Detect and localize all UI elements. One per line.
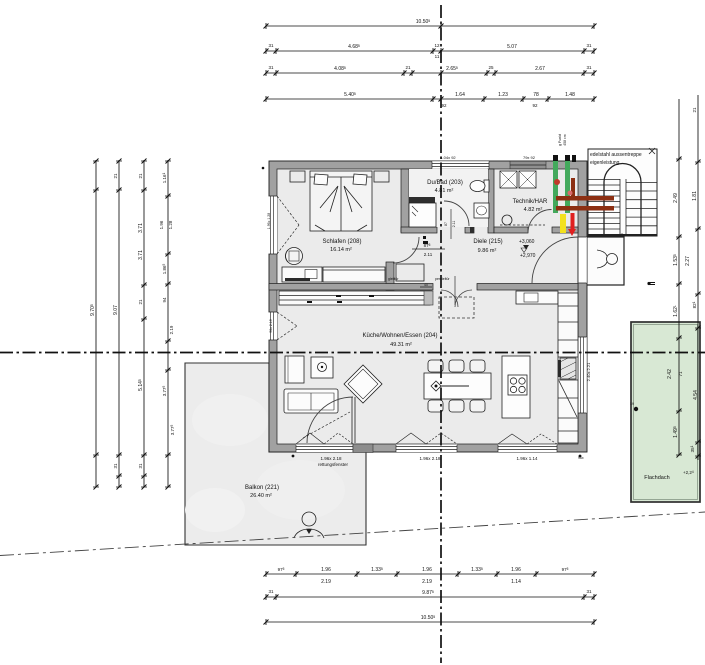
svg-text:+3,060: +3,060: [519, 239, 535, 245]
svg-text:2.40x 2.21: 2.40x 2.21: [586, 362, 591, 381]
svg-text:Flachdach: Flachdach: [644, 475, 669, 481]
svg-text:31: 31: [268, 65, 274, 70]
svg-text:19: 19: [630, 402, 634, 406]
svg-text:2.11: 2.11: [424, 252, 433, 257]
svg-text:16.14 m²: 16.14 m²: [330, 247, 352, 253]
svg-text:94: 94: [162, 297, 167, 303]
svg-text:1.64: 1.64: [455, 92, 465, 98]
svg-text:458 cm: 458 cm: [563, 134, 567, 146]
svg-text:edelstahl aussentreppe: edelstahl aussentreppe: [590, 152, 642, 158]
svg-text:1.96x 1.14: 1.96x 1.14: [516, 456, 538, 461]
svg-text:2.67: 2.67: [535, 66, 545, 72]
svg-text:1.23: 1.23: [498, 92, 508, 98]
svg-text:12: 12: [434, 43, 440, 48]
svg-text:1.48: 1.48: [565, 92, 575, 98]
svg-text:25: 25: [488, 65, 494, 70]
svg-text:31: 31: [586, 43, 592, 48]
svg-text:1.96: 1.96: [422, 567, 432, 573]
svg-text:21: 21: [405, 65, 411, 70]
svg-text:78: 78: [533, 92, 539, 98]
svg-text:Balkon (221): Balkon (221): [245, 485, 279, 491]
svg-text:87: 87: [444, 222, 448, 226]
svg-text:1.28: 1.28: [168, 220, 173, 229]
svg-text:31: 31: [268, 589, 274, 594]
svg-text:9.07: 9.07: [113, 305, 119, 315]
svg-text:31: 31: [268, 43, 274, 48]
svg-text:Du/Bad (203): Du/Bad (203): [427, 180, 463, 186]
svg-text:2.19: 2.19: [169, 325, 174, 334]
svg-text:1.14: 1.14: [511, 579, 521, 585]
svg-text:3.71: 3.71: [138, 223, 144, 233]
svg-text:rettungsfenster: rettungsfenster: [318, 462, 349, 467]
svg-text:1.96x 2.18: 1.96x 2.18: [419, 456, 441, 461]
svg-text:2.42: 2.42: [667, 369, 673, 379]
svg-text:2.11: 2.11: [452, 221, 456, 228]
svg-text:92: 92: [441, 103, 447, 108]
svg-text:71: 71: [678, 371, 683, 377]
svg-text:2.19: 2.19: [422, 579, 432, 585]
svg-text:40: 40: [424, 283, 428, 287]
svg-text:10.505: 10.505: [421, 615, 436, 621]
svg-text:1.96x 2.18: 1.96x 2.18: [320, 456, 342, 461]
svg-text:g Punkt: g Punkt: [558, 134, 562, 146]
svg-text:eigenleistung: eigenleistung: [590, 160, 620, 166]
svg-text:3.71: 3.71: [138, 250, 144, 260]
svg-text:1.96: 1.96: [511, 567, 521, 573]
svg-text:92: 92: [532, 103, 538, 108]
svg-text:31: 31: [586, 65, 592, 70]
svg-text:5.07: 5.07: [507, 44, 517, 50]
svg-text:1.96x 1.28: 1.96x 1.28: [267, 213, 271, 229]
svg-text:1.96: 1.96: [159, 220, 164, 229]
svg-text:gleittür: gleittür: [388, 277, 399, 281]
svg-text:31: 31: [586, 589, 592, 594]
svg-text:96x 2.19: 96x 2.19: [269, 319, 273, 332]
svg-text:31: 31: [113, 463, 118, 469]
svg-text:1.96: 1.96: [321, 567, 331, 573]
svg-text:31: 31: [138, 463, 143, 469]
svg-text:4.54: 4.54: [693, 390, 699, 400]
svg-text:+2,970: +2,970: [520, 253, 536, 259]
svg-text:10.505: 10.505: [416, 19, 431, 25]
svg-text:1.04x 92: 1.04x 92: [440, 155, 456, 160]
svg-text:4.82 m²: 4.82 m²: [524, 207, 543, 213]
svg-text:9.86 m²: 9.86 m²: [478, 248, 497, 254]
svg-text:79x 92: 79x 92: [523, 155, 536, 160]
svg-text:2.49: 2.49: [673, 193, 679, 203]
svg-text:49.31 m²: 49.31 m²: [390, 342, 412, 348]
svg-text:21: 21: [692, 107, 697, 113]
svg-text:Schlafen (208): Schlafen (208): [322, 239, 361, 245]
svg-text:11: 11: [435, 54, 440, 59]
svg-text:21: 21: [138, 173, 143, 179]
svg-text:pendeltür: pendeltür: [435, 277, 450, 281]
svg-text:21: 21: [113, 173, 118, 179]
svg-text:Küche/Wohnen/Essen (204): Küche/Wohnen/Essen (204): [363, 333, 438, 339]
svg-text:2.19: 2.19: [321, 579, 331, 585]
svg-text:1.81: 1.81: [692, 191, 698, 201]
svg-text:Diele (215): Diele (215): [473, 239, 502, 245]
svg-text:2.27: 2.27: [685, 256, 691, 266]
svg-text:21: 21: [138, 299, 143, 305]
svg-text:26.40 m²: 26.40 m²: [250, 493, 272, 499]
svg-text:Technik/HAR: Technik/HAR: [513, 199, 548, 205]
svg-text:4.81 m²: 4.81 m²: [435, 188, 454, 194]
